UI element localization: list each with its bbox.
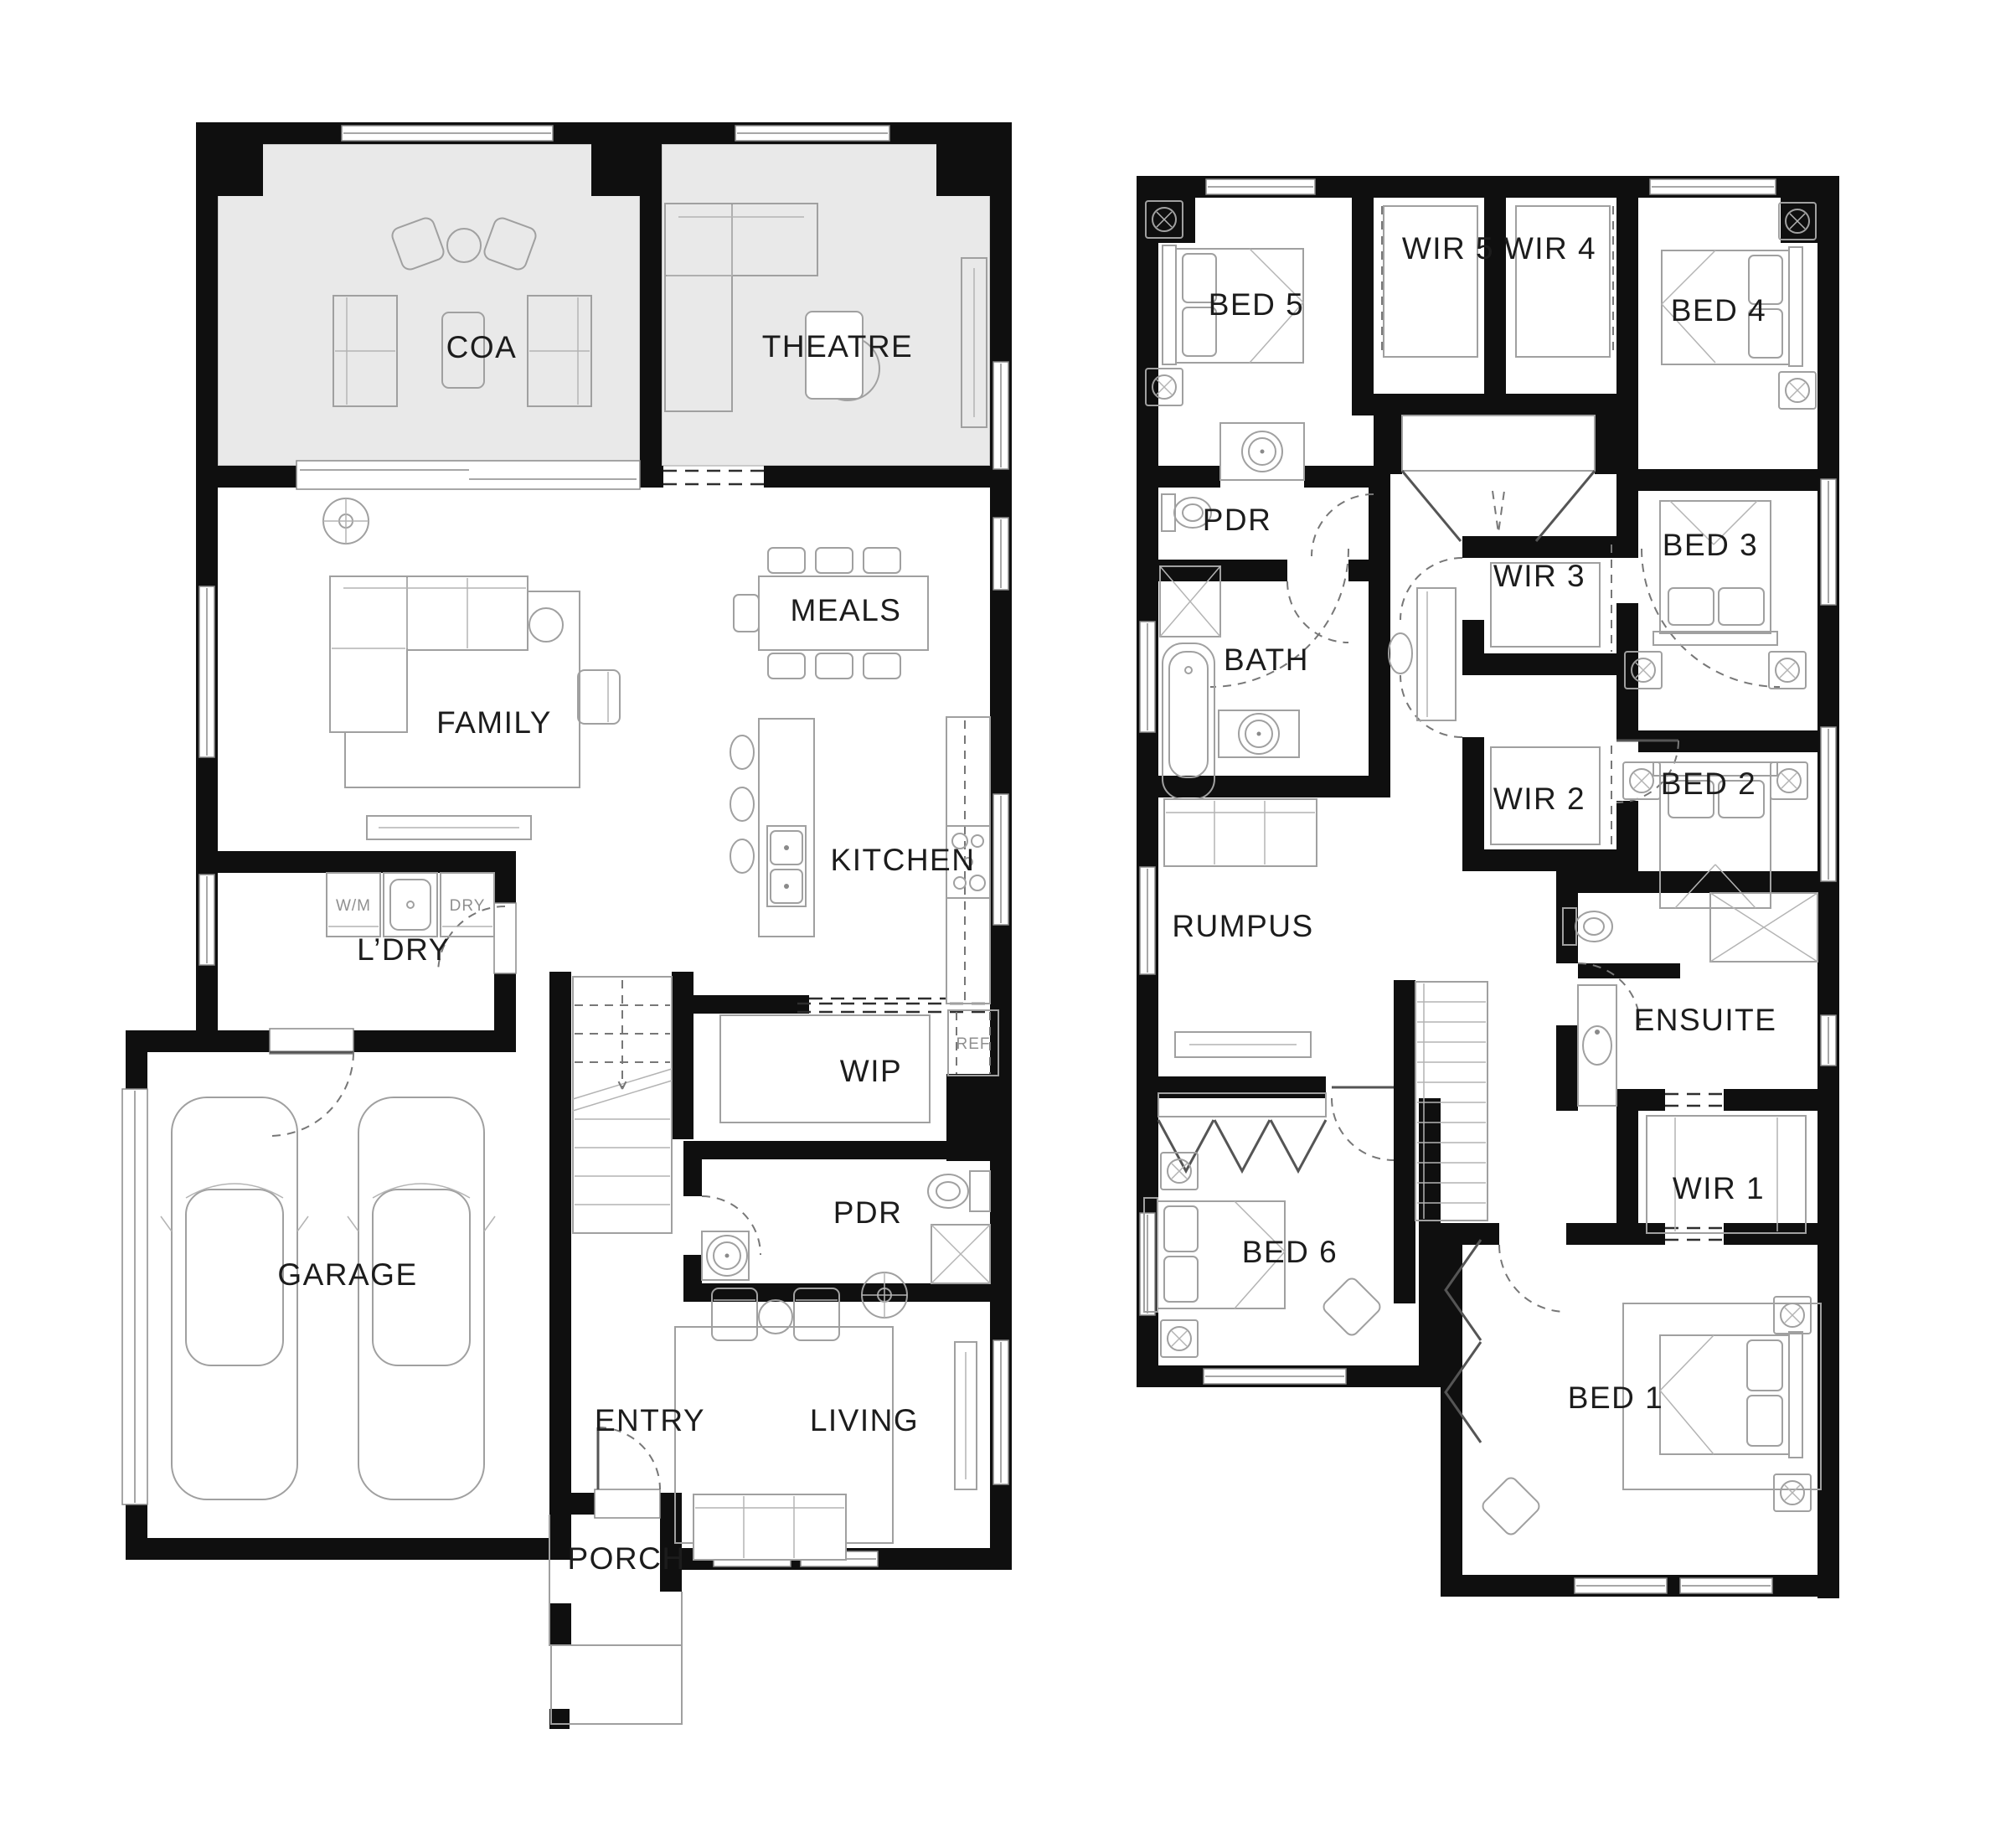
window — [342, 126, 553, 141]
side-table — [529, 608, 563, 642]
appliance-label-dry: DRY — [450, 897, 486, 915]
room-label-bath: BATH — [1224, 643, 1309, 677]
window — [993, 1340, 1008, 1484]
garage-door — [122, 1089, 147, 1504]
ground-floor-plan: COA THEATRE MEALS FAMILY KITCHEN L’DRY W… — [122, 122, 1012, 1729]
sliding-door — [296, 461, 640, 489]
room-label-meals: MEALS — [791, 593, 902, 627]
room-label-rumpus: RUMPUS — [1172, 909, 1313, 943]
toilet — [928, 1171, 990, 1211]
room-label-garage: GARAGE — [277, 1257, 417, 1292]
room-label-theatre: THEATRE — [762, 329, 913, 364]
robe-shelf — [1516, 206, 1610, 357]
bed — [1660, 1332, 1802, 1458]
robe-doors-bed6 — [1158, 1120, 1326, 1171]
tv-unit — [955, 1342, 977, 1489]
room-label-living: LIVING — [810, 1403, 919, 1437]
ground-dashed-openings — [663, 471, 990, 1012]
car — [161, 1097, 308, 1499]
downlight-icon — [1769, 652, 1806, 689]
room-label-bed4: BED 4 — [1671, 293, 1766, 328]
ground-labels: COA THEATRE MEALS FAMILY KITCHEN L’DRY W… — [277, 329, 990, 1576]
door-bed1 — [1499, 1245, 1566, 1312]
door-bed6 — [1332, 1087, 1394, 1160]
door-wir2 — [1400, 675, 1462, 737]
staircase — [573, 977, 672, 1233]
window — [1821, 1015, 1836, 1066]
room-label-coa: COA — [446, 330, 518, 364]
car — [348, 1097, 495, 1499]
window — [1140, 867, 1155, 974]
island-bench — [759, 719, 814, 937]
appliance-label-ref: REF — [956, 1035, 991, 1053]
room-label-ensuite: ENSUITE — [1634, 1003, 1777, 1037]
upper-floor-plan: BED 5 WIR 5 WIR 4 BED 4 PDR BATH WIR 3 B… — [1137, 176, 1839, 1598]
window — [1821, 479, 1836, 605]
downlight-icon — [1774, 1297, 1811, 1334]
room-label-bed1: BED 1 — [1568, 1381, 1663, 1415]
desk — [1389, 588, 1456, 720]
tv-unit — [367, 816, 531, 839]
window — [1206, 179, 1315, 194]
bed — [1653, 501, 1777, 645]
vanity-basin — [702, 1231, 749, 1280]
room-label-wir2: WIR 2 — [1493, 782, 1585, 816]
downlight-icon — [1779, 372, 1816, 409]
downlight-icon — [1771, 762, 1807, 799]
tv-unit — [1175, 1032, 1311, 1057]
door-bath — [1287, 581, 1348, 643]
side-table — [759, 1300, 792, 1334]
room-label-wir5: WIR 5 — [1402, 231, 1494, 266]
window — [1680, 1578, 1772, 1593]
room-label-ldry: L’DRY — [357, 932, 451, 967]
ceiling-fan-icon — [323, 498, 369, 544]
window — [993, 362, 1008, 469]
window — [993, 794, 1008, 925]
room-label-pdr-upper: PDR — [1203, 503, 1272, 537]
window — [735, 126, 889, 141]
upper-dashed-openings — [1382, 206, 1724, 1240]
vanity-basin — [1220, 423, 1304, 480]
window — [1650, 179, 1776, 194]
room-label-entry: ENTRY — [595, 1403, 705, 1437]
room-label-porch: PORCH — [567, 1541, 685, 1576]
window — [1575, 1578, 1667, 1593]
armchair — [1321, 1276, 1383, 1338]
window — [199, 875, 214, 965]
downlight-icon — [1623, 762, 1660, 799]
room-label-bed5: BED 5 — [1209, 287, 1304, 322]
pdr-door — [702, 1196, 761, 1255]
room-label-family: FAMILY — [436, 705, 552, 740]
room-label-kitchen: KITCHEN — [831, 843, 976, 877]
shower — [1710, 893, 1817, 962]
downlight-icon — [1774, 1474, 1811, 1511]
ceiling-fan-icon — [862, 1272, 907, 1318]
linen-cupboard — [931, 1225, 990, 1283]
appliance-label-wm: W/M — [336, 897, 371, 915]
window — [993, 518, 1008, 590]
window — [199, 586, 214, 757]
porch-step — [551, 1645, 682, 1724]
door-pdr-upper — [1312, 494, 1374, 556]
window — [1140, 1213, 1155, 1315]
window — [1204, 1369, 1346, 1384]
downlight-icon — [1161, 1320, 1198, 1357]
robe-shelf — [1384, 206, 1477, 357]
room-label-wip: WIP — [840, 1054, 902, 1088]
coa-room-floor — [218, 144, 640, 466]
floor-plan-page: COA THEATRE MEALS FAMILY KITCHEN L’DRY W… — [0, 0, 2016, 1827]
sofa — [693, 1494, 846, 1560]
bar-stools — [730, 735, 754, 873]
room-label-pdr-ground: PDR — [833, 1195, 903, 1230]
vanity-basin — [1578, 985, 1616, 1106]
sofa — [1164, 799, 1317, 866]
garage-internal-door — [270, 1029, 353, 1136]
room-label-wir4: WIR 4 — [1504, 231, 1596, 266]
vanity-basin — [1219, 710, 1299, 757]
armchair — [578, 670, 620, 724]
room-label-bed3: BED 3 — [1663, 528, 1758, 562]
hall-linen-doors — [1402, 415, 1595, 541]
entry-door — [595, 1427, 660, 1518]
floor-plan-canvas: COA THEATRE MEALS FAMILY KITCHEN L’DRY W… — [0, 0, 2016, 1827]
room-label-bed2: BED 2 — [1661, 766, 1756, 801]
room-label-bed6: BED 6 — [1242, 1235, 1338, 1269]
room-label-wir3: WIR 3 — [1493, 559, 1585, 593]
window — [1140, 622, 1155, 732]
window — [1821, 727, 1836, 881]
armchair — [1480, 1475, 1542, 1537]
room-label-wir1: WIR 1 — [1673, 1171, 1765, 1205]
